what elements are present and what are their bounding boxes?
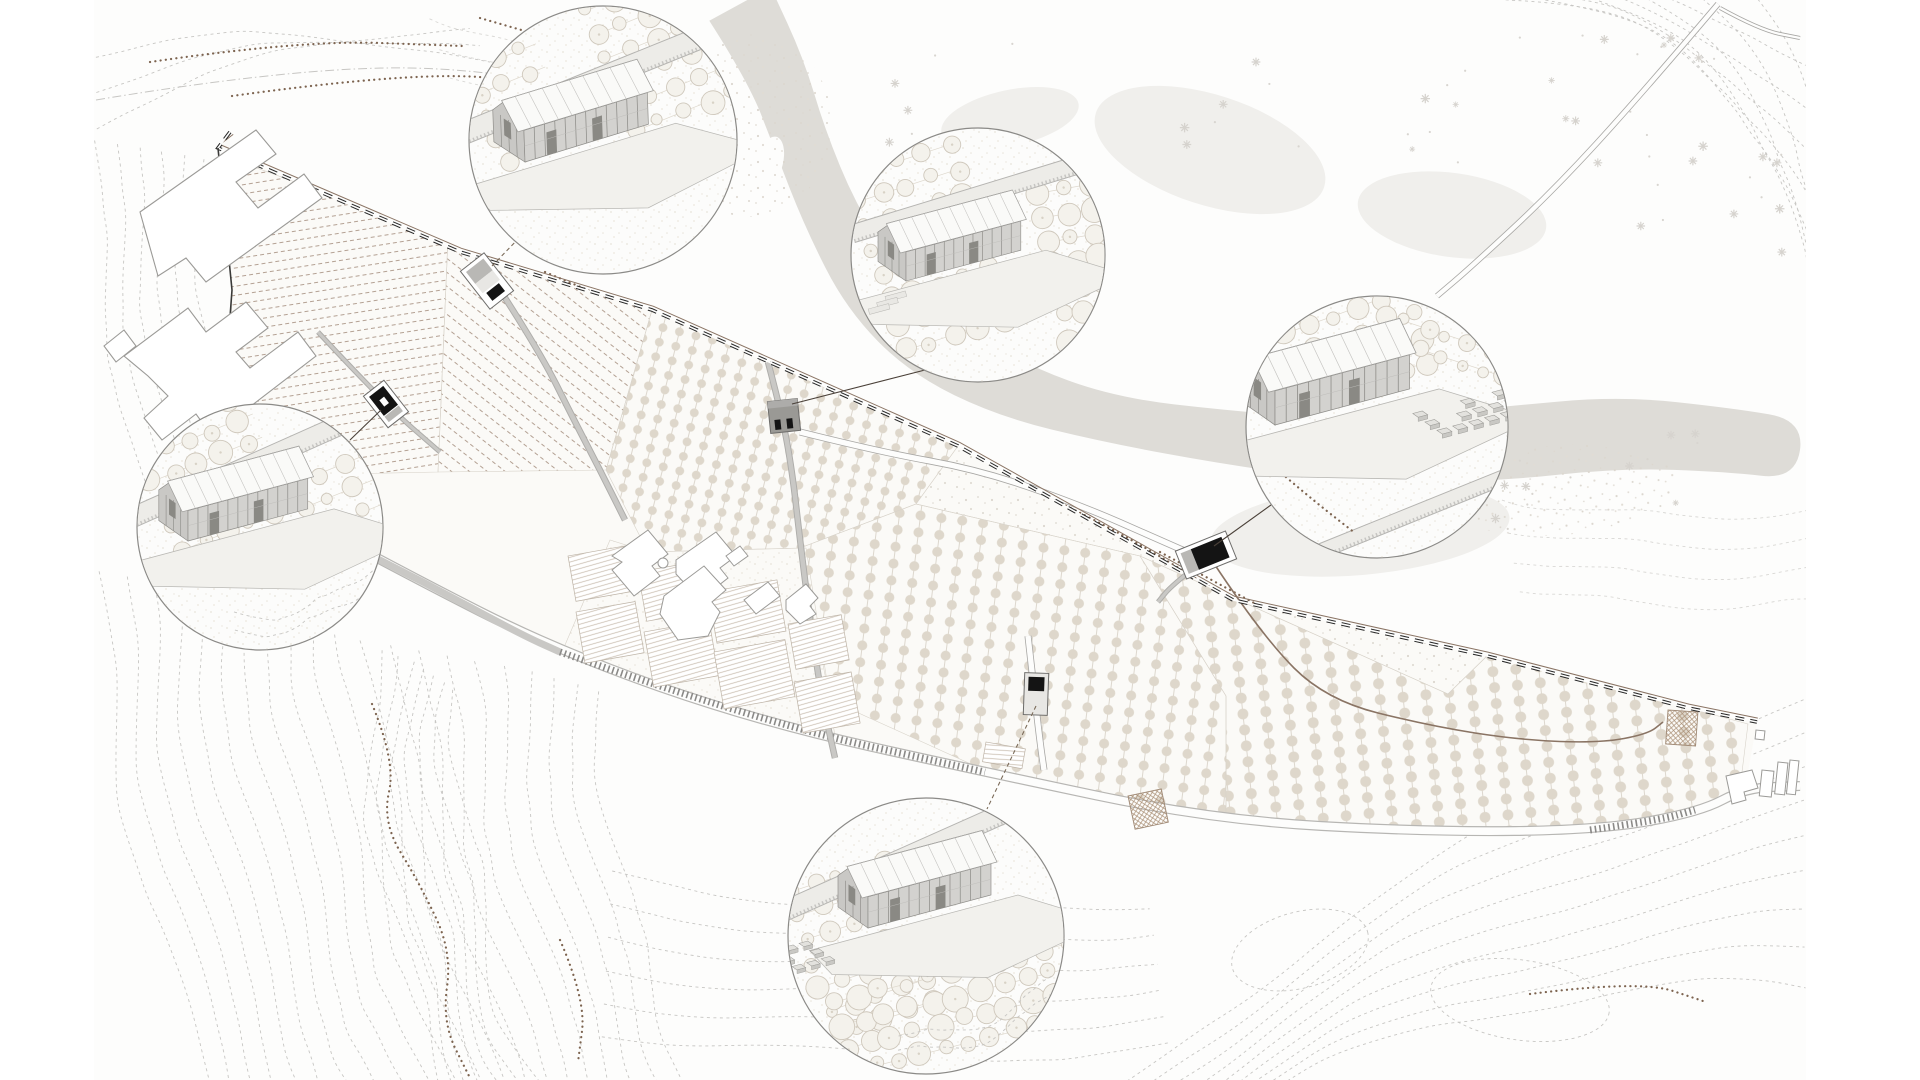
tree-dot	[1569, 476, 1571, 478]
tree-dot	[1526, 503, 1528, 505]
front-door	[254, 499, 264, 523]
tree-flake	[1421, 94, 1430, 103]
tree-dot	[1268, 83, 1270, 85]
tree-dot	[1464, 70, 1466, 72]
tree-flake	[1777, 248, 1786, 257]
tree-dot	[1760, 196, 1762, 198]
front-door	[936, 885, 946, 910]
tree-flake	[1637, 222, 1646, 231]
front-door	[546, 129, 557, 155]
front-door	[969, 241, 978, 264]
tree-dot	[1780, 154, 1782, 156]
east-building-outline	[1755, 730, 1765, 740]
front-door	[1349, 378, 1360, 405]
left-margin	[0, 0, 94, 1080]
tree-dot	[1657, 184, 1659, 186]
plan-marker-south-barn	[1023, 673, 1048, 716]
tree-flake	[885, 138, 894, 147]
tree-flake	[1758, 152, 1767, 161]
tree-dot	[1662, 219, 1664, 221]
garden-plot	[576, 602, 644, 664]
garden-plot	[714, 639, 795, 709]
right-margin	[1806, 0, 1920, 1080]
tree-flake	[1182, 140, 1191, 149]
marker-part	[786, 418, 793, 429]
tree-flake	[1661, 42, 1667, 48]
front-door	[210, 511, 220, 535]
tree-dot	[1646, 134, 1648, 136]
tree-dot	[1429, 131, 1431, 133]
tree-dot	[1507, 528, 1509, 530]
tree-dot	[911, 133, 913, 135]
tree-dot	[1011, 43, 1013, 45]
east-building-outline	[1759, 770, 1774, 797]
tree-flake	[1593, 158, 1602, 167]
tree-flake	[1673, 500, 1679, 506]
marker-part	[1028, 677, 1044, 692]
tree-dot	[1581, 34, 1583, 36]
front-door	[592, 115, 603, 141]
marker-part	[774, 419, 781, 430]
tree-dot	[1519, 36, 1521, 38]
site-masterplan-drawing	[0, 0, 1920, 1080]
drawing-stage	[0, 0, 1920, 1080]
tree-dot	[1531, 493, 1533, 495]
tree-flake	[1772, 158, 1781, 167]
garden-plot	[794, 672, 860, 733]
tree-dot	[1636, 53, 1638, 55]
front-door	[927, 252, 936, 275]
tree-dot	[1646, 458, 1648, 460]
village-round-structure	[658, 558, 668, 568]
hatched-plaza-square	[1128, 789, 1168, 829]
tree-dot	[1298, 145, 1300, 147]
tree-dot	[1696, 442, 1698, 444]
tree-dot	[1407, 133, 1409, 135]
tree-dot	[934, 54, 936, 56]
plan-marker-river-barn	[767, 399, 800, 434]
tree-dot	[1214, 121, 1216, 123]
tree-dot	[1457, 161, 1459, 163]
front-door	[890, 897, 900, 922]
tree-dot	[1749, 176, 1751, 178]
front-door	[1299, 391, 1310, 418]
tree-dot	[1713, 58, 1715, 60]
tree-dot	[1701, 61, 1703, 63]
hatched-plaza-square	[1666, 710, 1698, 746]
tree-dot	[1648, 155, 1650, 157]
tree-flake	[891, 79, 900, 88]
tree-dot	[1446, 84, 1448, 86]
garden-plot	[788, 615, 849, 670]
tree-flake	[1625, 462, 1634, 471]
tree-dot	[1519, 460, 1521, 462]
